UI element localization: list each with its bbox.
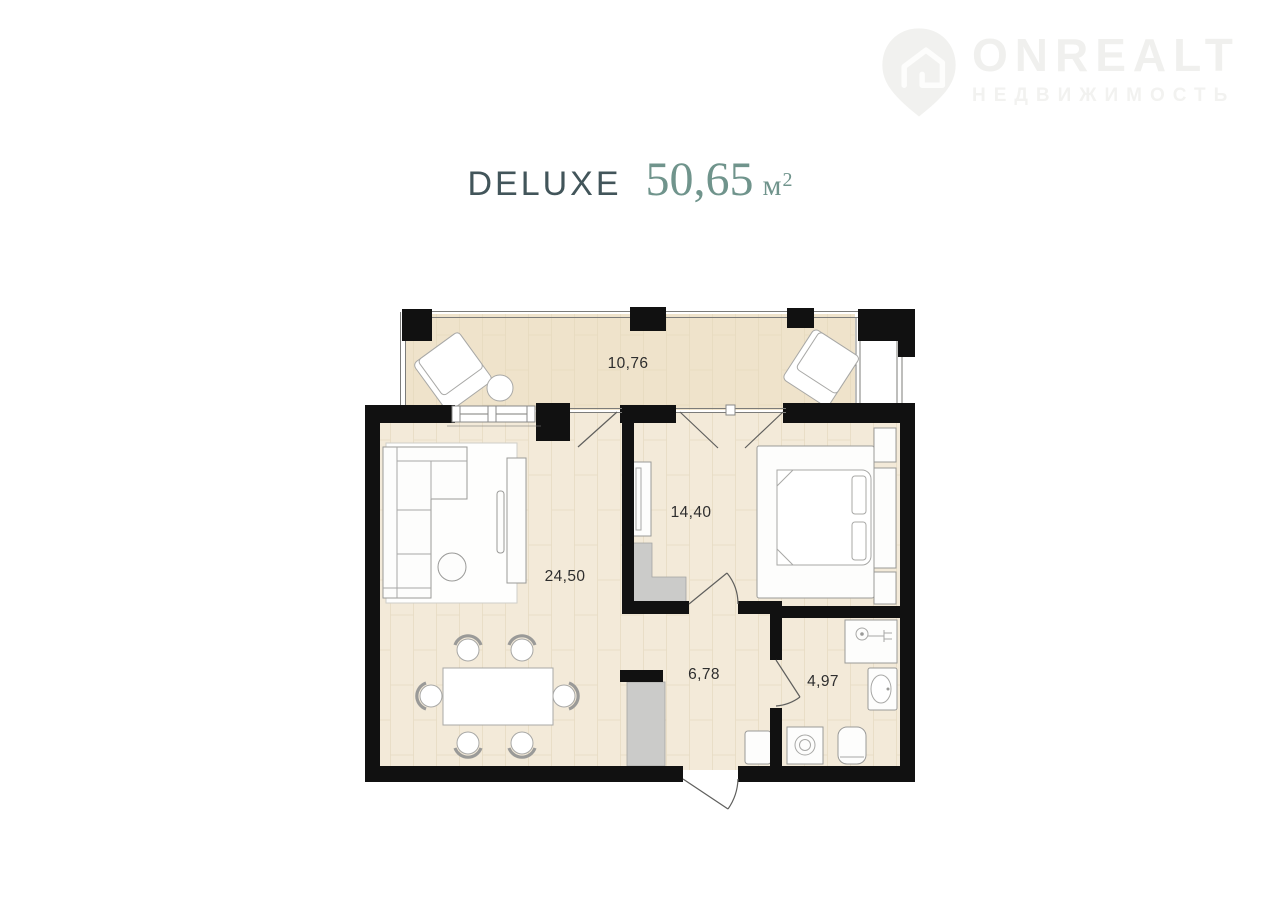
room-label-hallway: 6,78 — [688, 666, 720, 684]
location-pin-icon — [880, 26, 958, 118]
brand-watermark: ONREALT НЕДВИЖИМОСТЬ — [880, 26, 1240, 118]
room-label-balcony: 10,76 — [608, 355, 649, 373]
plan-title: DELUXE 50,65м2 — [467, 152, 792, 207]
plan-name: DELUXE — [467, 165, 621, 204]
room-label-living-room: 24,50 — [545, 568, 586, 586]
plan-area-unit: м2 — [763, 169, 793, 202]
plan-area-value: 50,65 — [646, 153, 754, 206]
room-label-bathroom: 4,97 — [807, 673, 839, 691]
room-label-bedroom: 14,40 — [671, 504, 712, 522]
brand-tagline: НЕДВИЖИМОСТЬ — [972, 86, 1240, 105]
plan-area: 50,65м2 — [646, 152, 793, 207]
brand-name: ONREALT — [972, 32, 1240, 78]
page: ONREALT НЕДВИЖИМОСТЬ DELUXE 50,65м2 — [0, 0, 1280, 910]
